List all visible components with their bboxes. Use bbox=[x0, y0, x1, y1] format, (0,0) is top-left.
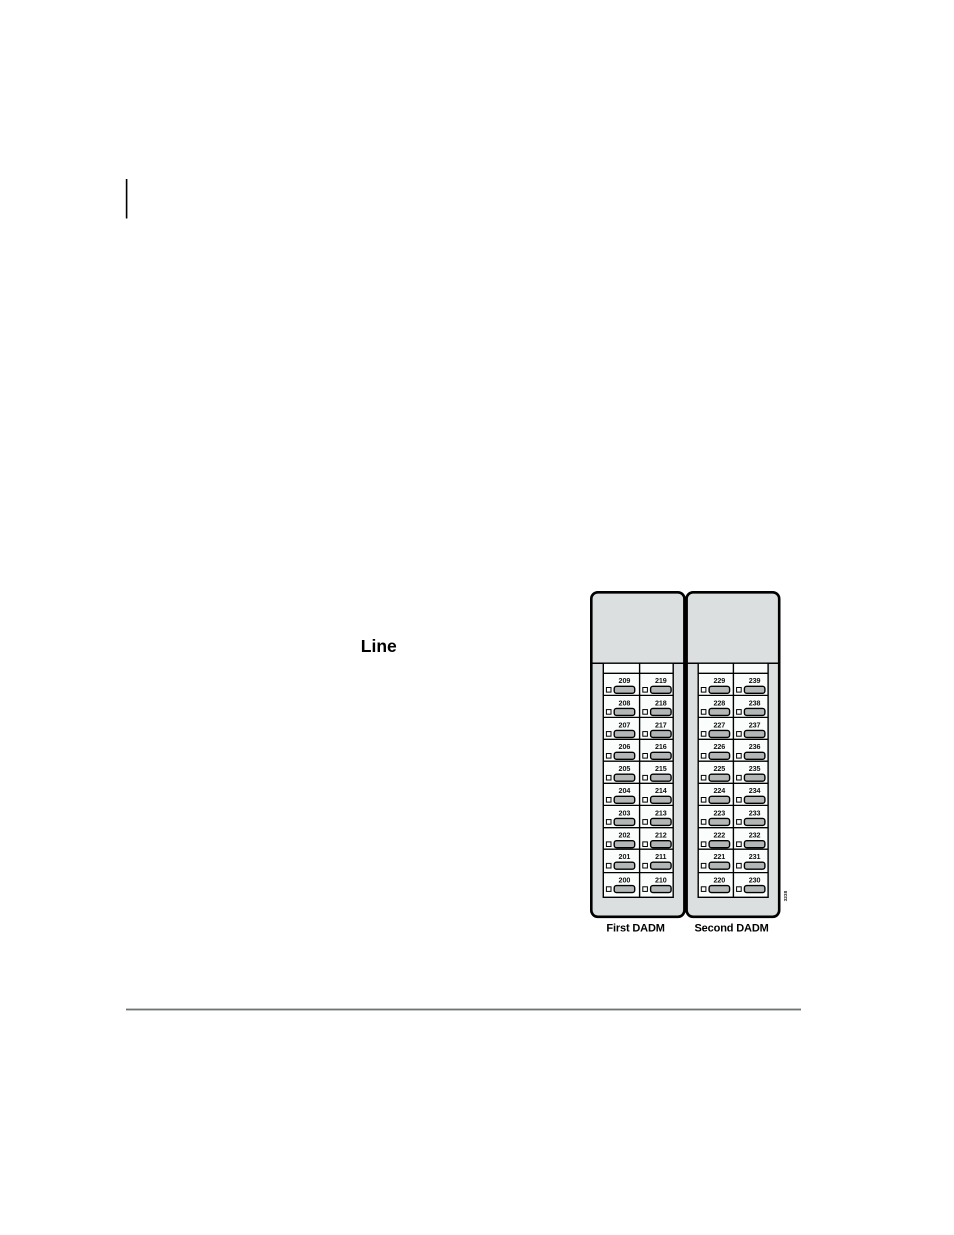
svg-text:231: 231 bbox=[749, 852, 761, 861]
svg-text:200: 200 bbox=[619, 876, 631, 885]
svg-text:239: 239 bbox=[749, 676, 761, 685]
svg-text:3238: 3238 bbox=[783, 890, 789, 901]
svg-text:First DADM: First DADM bbox=[606, 923, 664, 935]
svg-text:234: 234 bbox=[749, 786, 761, 795]
svg-text:238: 238 bbox=[749, 698, 761, 707]
svg-text:233: 233 bbox=[749, 808, 761, 817]
svg-text:215: 215 bbox=[655, 764, 667, 773]
svg-text:204: 204 bbox=[619, 786, 631, 795]
svg-text:202: 202 bbox=[619, 831, 631, 840]
svg-text:212: 212 bbox=[655, 831, 667, 840]
svg-text:209: 209 bbox=[619, 676, 631, 685]
svg-text:232: 232 bbox=[749, 831, 761, 840]
svg-text:227: 227 bbox=[713, 720, 725, 729]
svg-text:225: 225 bbox=[713, 764, 725, 773]
svg-text:222: 222 bbox=[713, 831, 725, 840]
svg-text:201: 201 bbox=[619, 852, 631, 861]
svg-text:213: 213 bbox=[655, 808, 667, 817]
svg-text:219: 219 bbox=[655, 676, 667, 685]
svg-text:228: 228 bbox=[713, 698, 725, 707]
svg-text:207: 207 bbox=[619, 720, 631, 729]
svg-text:217: 217 bbox=[655, 720, 667, 729]
svg-text:226: 226 bbox=[713, 742, 725, 751]
svg-text:205: 205 bbox=[619, 764, 631, 773]
svg-text:236: 236 bbox=[749, 742, 761, 751]
svg-text:237: 237 bbox=[749, 720, 761, 729]
svg-text:229: 229 bbox=[713, 676, 725, 685]
svg-text:Line: Line bbox=[361, 636, 397, 656]
svg-text:206: 206 bbox=[619, 742, 631, 751]
svg-text:230: 230 bbox=[749, 876, 761, 885]
svg-text:216: 216 bbox=[655, 742, 667, 751]
svg-text:214: 214 bbox=[655, 786, 667, 795]
svg-text:208: 208 bbox=[619, 698, 631, 707]
svg-text:220: 220 bbox=[713, 876, 725, 885]
svg-text:221: 221 bbox=[713, 852, 725, 861]
svg-text:218: 218 bbox=[655, 698, 667, 707]
svg-text:211: 211 bbox=[655, 852, 666, 861]
svg-text:224: 224 bbox=[713, 786, 725, 795]
svg-text:Second DADM: Second DADM bbox=[695, 923, 769, 935]
svg-text:210: 210 bbox=[655, 876, 667, 885]
svg-text:223: 223 bbox=[713, 808, 725, 817]
svg-text:235: 235 bbox=[749, 764, 761, 773]
svg-text:203: 203 bbox=[619, 808, 631, 817]
